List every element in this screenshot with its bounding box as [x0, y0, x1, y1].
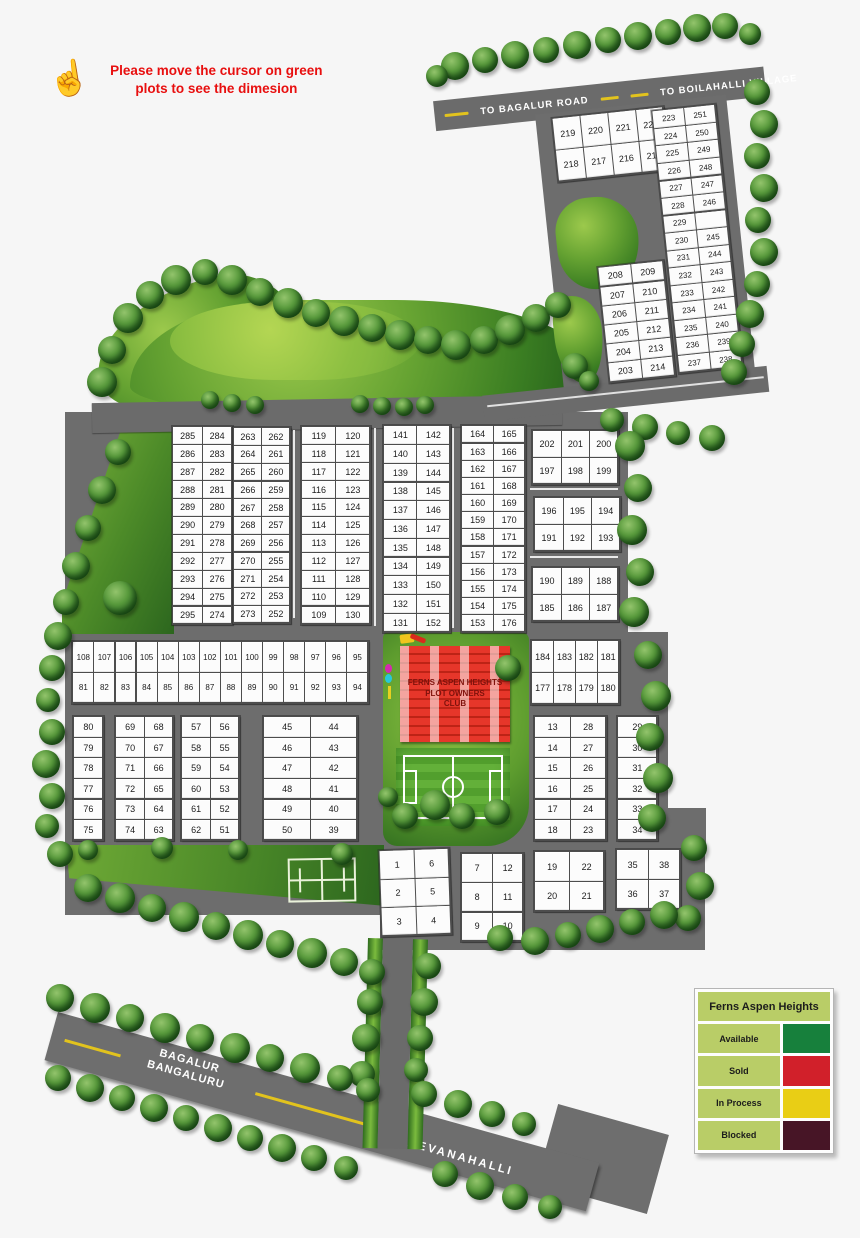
plot-193[interactable]: 193 [592, 525, 619, 550]
plot-257[interactable]: 257 [262, 517, 289, 534]
plot-261[interactable]: 261 [262, 446, 289, 463]
plot-block-196-193: 196195194191192193 [534, 497, 621, 552]
plot-54[interactable]: 54 [211, 758, 238, 777]
plot-107[interactable]: 107 [94, 642, 114, 671]
plot-64[interactable]: 64 [145, 800, 172, 819]
plot-176[interactable]: 176 [494, 615, 524, 631]
plot-197[interactable]: 197 [533, 458, 560, 483]
plot-143[interactable]: 143 [417, 445, 449, 463]
plot-7[interactable]: 7 [462, 854, 491, 882]
plot-135[interactable]: 135 [384, 539, 416, 557]
plot-55[interactable]: 55 [211, 738, 238, 757]
plot-152[interactable]: 152 [417, 614, 449, 632]
plot-269[interactable]: 269 [234, 535, 261, 552]
plot-132[interactable]: 132 [384, 595, 416, 613]
plot-53[interactable]: 53 [211, 779, 238, 798]
plot-252[interactable]: 252 [262, 606, 289, 623]
plot-44[interactable]: 44 [311, 717, 356, 736]
instruction-note: ☝ Please move the cursor on green plots … [48, 62, 348, 97]
plot-block-108-94: 1081071061051041031021011009998979695818… [72, 641, 369, 704]
plot-258[interactable]: 258 [262, 499, 289, 516]
plot-286[interactable]: 286 [173, 445, 201, 462]
plot-169[interactable]: 169 [494, 495, 524, 511]
plot-164[interactable]: 164 [462, 426, 492, 442]
plot-156[interactable]: 156 [462, 564, 492, 580]
plot-24[interactable]: 24 [571, 800, 605, 819]
plot-29[interactable]: 29 [618, 717, 656, 736]
plot-139[interactable]: 139 [384, 464, 416, 482]
plot-167[interactable]: 167 [494, 461, 524, 477]
plot-94[interactable]: 94 [347, 673, 367, 702]
plot-74[interactable]: 74 [116, 820, 143, 839]
plot-148[interactable]: 148 [417, 539, 449, 557]
plot-81[interactable]: 81 [73, 673, 93, 702]
plot-290[interactable]: 290 [173, 517, 201, 534]
plot-119[interactable]: 119 [302, 427, 335, 444]
plot-145[interactable]: 145 [417, 483, 449, 501]
plot-198[interactable]: 198 [562, 458, 589, 483]
plot-72[interactable]: 72 [116, 779, 143, 798]
plot-142[interactable]: 142 [417, 426, 449, 444]
plot-190[interactable]: 190 [533, 568, 560, 593]
plot-263[interactable]: 263 [234, 428, 261, 445]
plot-1[interactable]: 1 [380, 850, 414, 878]
plot-10[interactable]: 10 [493, 913, 522, 941]
site-map: ☝ Please move the cursor on green plots … [0, 0, 860, 1238]
plot-78[interactable]: 78 [74, 758, 102, 777]
plot-281[interactable]: 281 [203, 481, 231, 498]
plot-120[interactable]: 120 [336, 427, 369, 444]
instruction-text: Please move the cursor on green plots to… [96, 62, 336, 97]
plot-70[interactable]: 70 [116, 738, 143, 757]
plot-50[interactable]: 50 [264, 820, 309, 839]
plot-192[interactable]: 192 [564, 525, 591, 550]
plot-161[interactable]: 161 [462, 478, 492, 494]
plot-171[interactable]: 171 [494, 529, 524, 545]
plot-122[interactable]: 122 [336, 463, 369, 480]
plot-174[interactable]: 174 [494, 581, 524, 597]
plot-66[interactable]: 66 [145, 758, 172, 777]
plot-block-57-51: 575658555954605361526251 [181, 716, 240, 841]
plot-block-119-130: 1191201181211171221161231151241141251131… [301, 426, 371, 625]
plot-79[interactable]: 79 [74, 738, 102, 757]
plot-289[interactable]: 289 [173, 499, 201, 516]
plot-26[interactable]: 26 [571, 758, 605, 777]
plot-189[interactable]: 189 [562, 568, 589, 593]
plot-191[interactable]: 191 [535, 525, 562, 550]
plot-146[interactable]: 146 [417, 501, 449, 519]
plot-179[interactable]: 179 [576, 673, 597, 703]
plot-154[interactable]: 154 [462, 598, 492, 614]
plot-163[interactable]: 163 [462, 444, 492, 460]
legend-title: Ferns Aspen Heights [698, 992, 830, 1021]
plot-277[interactable]: 277 [203, 553, 231, 570]
plot-162[interactable]: 162 [462, 461, 492, 477]
plot-125[interactable]: 125 [336, 517, 369, 534]
legend-label-available: Available [698, 1024, 780, 1053]
plot-275[interactable]: 275 [203, 589, 231, 606]
plot-117[interactable]: 117 [302, 463, 335, 480]
plot-39[interactable]: 39 [311, 820, 356, 839]
plot-280[interactable]: 280 [203, 499, 231, 516]
plot-84[interactable]: 84 [137, 673, 157, 702]
plot-133[interactable]: 133 [384, 576, 416, 594]
plot-194[interactable]: 194 [592, 498, 619, 523]
plot-200[interactable]: 200 [590, 431, 617, 456]
plot-128[interactable]: 128 [336, 571, 369, 588]
plot-86[interactable]: 86 [179, 673, 199, 702]
plot-271[interactable]: 271 [234, 570, 261, 587]
legend-row-sold: Sold [698, 1056, 830, 1085]
plot-46[interactable]: 46 [264, 738, 309, 757]
plot-15[interactable]: 15 [535, 758, 569, 777]
plot-block-69-63: 696870677166726573647463 [115, 716, 174, 841]
plot-254[interactable]: 254 [262, 570, 289, 587]
plot-284[interactable]: 284 [203, 427, 231, 444]
plot-block-80-75: 807978777675 [73, 716, 104, 841]
plot-113[interactable]: 113 [302, 535, 335, 552]
plot-8[interactable]: 8 [462, 883, 491, 911]
plot-137[interactable]: 137 [384, 501, 416, 519]
plot-111[interactable]: 111 [302, 571, 335, 588]
plot-121[interactable]: 121 [336, 445, 369, 462]
plot-13[interactable]: 13 [535, 717, 569, 736]
plot-89[interactable]: 89 [242, 673, 262, 702]
plot-130[interactable]: 130 [336, 607, 369, 624]
plot-91[interactable]: 91 [284, 673, 304, 702]
plot-110[interactable]: 110 [302, 589, 335, 606]
plot-35[interactable]: 35 [617, 850, 647, 878]
plot-block-1-4: 162534 [379, 848, 453, 937]
plot-295[interactable]: 295 [173, 607, 201, 624]
plot-168[interactable]: 168 [494, 478, 524, 494]
plot-71[interactable]: 71 [116, 758, 143, 777]
plot-181[interactable]: 181 [598, 641, 619, 671]
plot-19[interactable]: 19 [535, 852, 568, 880]
plot-287[interactable]: 287 [173, 463, 201, 480]
plot-58[interactable]: 58 [182, 738, 209, 757]
plot-256[interactable]: 256 [262, 535, 289, 552]
plot-87[interactable]: 87 [200, 673, 220, 702]
plot-63[interactable]: 63 [145, 820, 172, 839]
plot-255[interactable]: 255 [262, 553, 289, 570]
plot-block-164-176: 1641651631661621671611681601691591701581… [461, 425, 526, 633]
plot-4[interactable]: 4 [416, 906, 450, 934]
plot-73[interactable]: 73 [116, 800, 143, 819]
plot-175[interactable]: 175 [494, 598, 524, 614]
plot-199[interactable]: 199 [590, 458, 617, 483]
plot-65[interactable]: 65 [145, 779, 172, 798]
plot-112[interactable]: 112 [302, 553, 335, 570]
plot-99[interactable]: 99 [263, 642, 283, 671]
plot-33[interactable]: 33 [618, 800, 656, 819]
plot-block-13-23: 132814271526162517241823 [534, 716, 607, 841]
plot-264[interactable]: 264 [234, 446, 261, 463]
plot-28[interactable]: 28 [571, 717, 605, 736]
plot-165[interactable]: 165 [494, 426, 524, 442]
plot-47[interactable]: 47 [264, 758, 309, 777]
plot-140[interactable]: 140 [384, 445, 416, 463]
plot-157[interactable]: 157 [462, 547, 492, 563]
plot-262[interactable]: 262 [262, 428, 289, 445]
plot-158[interactable]: 158 [462, 529, 492, 545]
plot-9[interactable]: 9 [462, 913, 491, 941]
plot-136[interactable]: 136 [384, 520, 416, 538]
plot-56[interactable]: 56 [211, 717, 238, 736]
plot-block-190-187: 190189188185186187 [532, 567, 619, 622]
legend-swatch-sold [783, 1056, 830, 1085]
plot-138[interactable]: 138 [384, 483, 416, 501]
plot-block-19-21: 19222021 [534, 851, 605, 912]
plot-177[interactable]: 177 [532, 673, 553, 703]
plot-183[interactable]: 183 [554, 641, 575, 671]
hand-cursor-icon: ☝ [46, 59, 93, 100]
plot-279[interactable]: 279 [203, 517, 231, 534]
plot-272[interactable]: 272 [234, 588, 261, 605]
legend-label-blocked: Blocked [698, 1121, 780, 1150]
plot-82[interactable]: 82 [94, 673, 114, 702]
plot-270[interactable]: 270 [234, 553, 261, 570]
plot-61[interactable]: 61 [182, 800, 209, 819]
plot-173[interactable]: 173 [494, 564, 524, 580]
plot-97[interactable]: 97 [305, 642, 325, 671]
plot-11[interactable]: 11 [493, 883, 522, 911]
plot-134[interactable]: 134 [384, 558, 416, 576]
plot-96[interactable]: 96 [326, 642, 346, 671]
plot-21[interactable]: 21 [570, 882, 603, 910]
plot-184[interactable]: 184 [532, 641, 553, 671]
plot-266[interactable]: 266 [234, 482, 261, 499]
plot-95[interactable]: 95 [347, 642, 367, 671]
legend-label-inprocess: In Process [698, 1089, 780, 1118]
plot-150[interactable]: 150 [417, 576, 449, 594]
legend-label-sold: Sold [698, 1056, 780, 1085]
plot-172[interactable]: 172 [494, 547, 524, 563]
plot-185[interactable]: 185 [533, 595, 560, 620]
plot-92[interactable]: 92 [305, 673, 325, 702]
plot-62[interactable]: 62 [182, 820, 209, 839]
plot-68[interactable]: 68 [145, 717, 172, 736]
legend-panel: Ferns Aspen Heights Available Sold In Pr… [694, 988, 834, 1154]
plot-273[interactable]: 273 [234, 606, 261, 623]
plot-187[interactable]: 187 [590, 595, 617, 620]
plot-59[interactable]: 59 [182, 758, 209, 777]
plot-126[interactable]: 126 [336, 535, 369, 552]
plot-265[interactable]: 265 [234, 464, 261, 481]
plot-3[interactable]: 3 [382, 907, 416, 935]
plot-45[interactable]: 45 [264, 717, 309, 736]
plot-90[interactable]: 90 [263, 673, 283, 702]
plot-291[interactable]: 291 [173, 535, 201, 552]
plot-31[interactable]: 31 [618, 758, 656, 777]
plot-30[interactable]: 30 [618, 738, 656, 757]
plot-98[interactable]: 98 [284, 642, 304, 671]
plot-5[interactable]: 5 [416, 878, 450, 906]
plot-170[interactable]: 170 [494, 512, 524, 528]
plot-131[interactable]: 131 [384, 614, 416, 632]
plot-160[interactable]: 160 [462, 495, 492, 511]
plot-6[interactable]: 6 [415, 849, 449, 877]
plot-118[interactable]: 118 [302, 445, 335, 462]
plot-106[interactable]: 106 [116, 642, 136, 671]
plot-block-7-10: 712811910 [461, 853, 524, 942]
plot-127[interactable]: 127 [336, 553, 369, 570]
plot-123[interactable]: 123 [336, 481, 369, 498]
plot-276[interactable]: 276 [203, 571, 231, 588]
plot-block-29-34: 293031323334 [617, 716, 658, 841]
plot-278[interactable]: 278 [203, 535, 231, 552]
plot-69[interactable]: 69 [116, 717, 143, 736]
plot-253[interactable]: 253 [262, 588, 289, 605]
plot-109[interactable]: 109 [302, 607, 335, 624]
plot-48[interactable]: 48 [264, 779, 309, 798]
plot-41[interactable]: 41 [311, 779, 356, 798]
plot-27[interactable]: 27 [571, 738, 605, 757]
plot-285[interactable]: 285 [173, 427, 201, 444]
plot-51[interactable]: 51 [211, 820, 238, 839]
plot-block-35-37: 35383637 [616, 849, 681, 910]
plot-294[interactable]: 294 [173, 589, 201, 606]
plot-block-263-252: 2632622642612652602662592672582682572692… [233, 427, 291, 624]
plot-151[interactable]: 151 [417, 595, 449, 613]
plot-114[interactable]: 114 [302, 517, 335, 534]
plot-32[interactable]: 32 [618, 779, 656, 798]
plot-88[interactable]: 88 [221, 673, 241, 702]
plot-36[interactable]: 36 [617, 880, 647, 908]
plot-292[interactable]: 292 [173, 553, 201, 570]
plot-16[interactable]: 16 [535, 779, 569, 798]
legend-swatch-available [783, 1024, 830, 1053]
plot-42[interactable]: 42 [311, 758, 356, 777]
plot-block-184-180: 184183182181177178179180 [531, 640, 620, 705]
plot-22[interactable]: 22 [570, 852, 603, 880]
plot-155[interactable]: 155 [462, 581, 492, 597]
plot-202[interactable]: 202 [533, 431, 560, 456]
plot-52[interactable]: 52 [211, 800, 238, 819]
plot-102[interactable]: 102 [200, 642, 220, 671]
plot-283[interactable]: 283 [203, 445, 231, 462]
plot-182[interactable]: 182 [576, 641, 597, 671]
plot-93[interactable]: 93 [326, 673, 346, 702]
plot-75[interactable]: 75 [74, 820, 102, 839]
plot-83[interactable]: 83 [116, 673, 136, 702]
plot-43[interactable]: 43 [311, 738, 356, 757]
plot-260[interactable]: 260 [262, 464, 289, 481]
plot-108[interactable]: 108 [73, 642, 93, 671]
plot-268[interactable]: 268 [234, 517, 261, 534]
plot-23[interactable]: 23 [571, 820, 605, 839]
plot-195[interactable]: 195 [564, 498, 591, 523]
plot-38[interactable]: 38 [649, 850, 679, 878]
plot-147[interactable]: 147 [417, 520, 449, 538]
plot-166[interactable]: 166 [494, 444, 524, 460]
legend-row-blocked: Blocked [698, 1121, 830, 1150]
plot-178[interactable]: 178 [554, 673, 575, 703]
plot-18[interactable]: 18 [535, 820, 569, 839]
plot-49[interactable]: 49 [264, 800, 309, 819]
plot-144[interactable]: 144 [417, 464, 449, 482]
plot-block-141-152: 1411421401431391441381451371461361471351… [383, 425, 451, 633]
plot-block-45-39: 454446434742484149405039 [263, 716, 358, 841]
plot-40[interactable]: 40 [311, 800, 356, 819]
plot-101[interactable]: 101 [221, 642, 241, 671]
plot-14[interactable]: 14 [535, 738, 569, 757]
plot-288[interactable]: 288 [173, 481, 201, 498]
plot-105[interactable]: 105 [137, 642, 157, 671]
legend-row-available: Available [698, 1024, 830, 1053]
plot-77[interactable]: 77 [74, 779, 102, 798]
plot-57[interactable]: 57 [182, 717, 209, 736]
plot-282[interactable]: 282 [203, 463, 231, 480]
legend-row-inprocess: In Process [698, 1089, 830, 1118]
plot-180[interactable]: 180 [598, 673, 619, 703]
plot-80[interactable]: 80 [74, 717, 102, 736]
plot-259[interactable]: 259 [262, 482, 289, 499]
plot-25[interactable]: 25 [571, 779, 605, 798]
plot-34[interactable]: 34 [618, 820, 656, 839]
plot-149[interactable]: 149 [417, 558, 449, 576]
plot-20[interactable]: 20 [535, 882, 568, 910]
plot-267[interactable]: 267 [234, 499, 261, 516]
plot-block-285-274: 2852842862832872822882812892802902792912… [172, 426, 233, 625]
plot-12[interactable]: 12 [493, 854, 522, 882]
legend-swatch-blocked [783, 1121, 830, 1150]
plot-67[interactable]: 67 [145, 738, 172, 757]
plot-186[interactable]: 186 [562, 595, 589, 620]
plot-201[interactable]: 201 [562, 431, 589, 456]
plot-block-202-199: 202201200197198199 [532, 430, 619, 485]
legend-swatch-inprocess [783, 1089, 830, 1118]
plot-188[interactable]: 188 [590, 568, 617, 593]
plot-159[interactable]: 159 [462, 512, 492, 528]
plot-293[interactable]: 293 [173, 571, 201, 588]
plot-60[interactable]: 60 [182, 779, 209, 798]
plot-153[interactable]: 153 [462, 615, 492, 631]
plot-100[interactable]: 100 [242, 642, 262, 671]
plot-124[interactable]: 124 [336, 499, 369, 516]
plot-129[interactable]: 129 [336, 589, 369, 606]
plot-103[interactable]: 103 [179, 642, 199, 671]
plot-76[interactable]: 76 [74, 800, 102, 819]
plot-2[interactable]: 2 [381, 879, 415, 907]
plot-196[interactable]: 196 [535, 498, 562, 523]
plot-274[interactable]: 274 [203, 607, 231, 624]
plot-141[interactable]: 141 [384, 426, 416, 444]
plot-85[interactable]: 85 [158, 673, 178, 702]
plot-104[interactable]: 104 [158, 642, 178, 671]
plot-37[interactable]: 37 [649, 880, 679, 908]
plot-116[interactable]: 116 [302, 481, 335, 498]
plot-115[interactable]: 115 [302, 499, 335, 516]
plot-17[interactable]: 17 [535, 800, 569, 819]
